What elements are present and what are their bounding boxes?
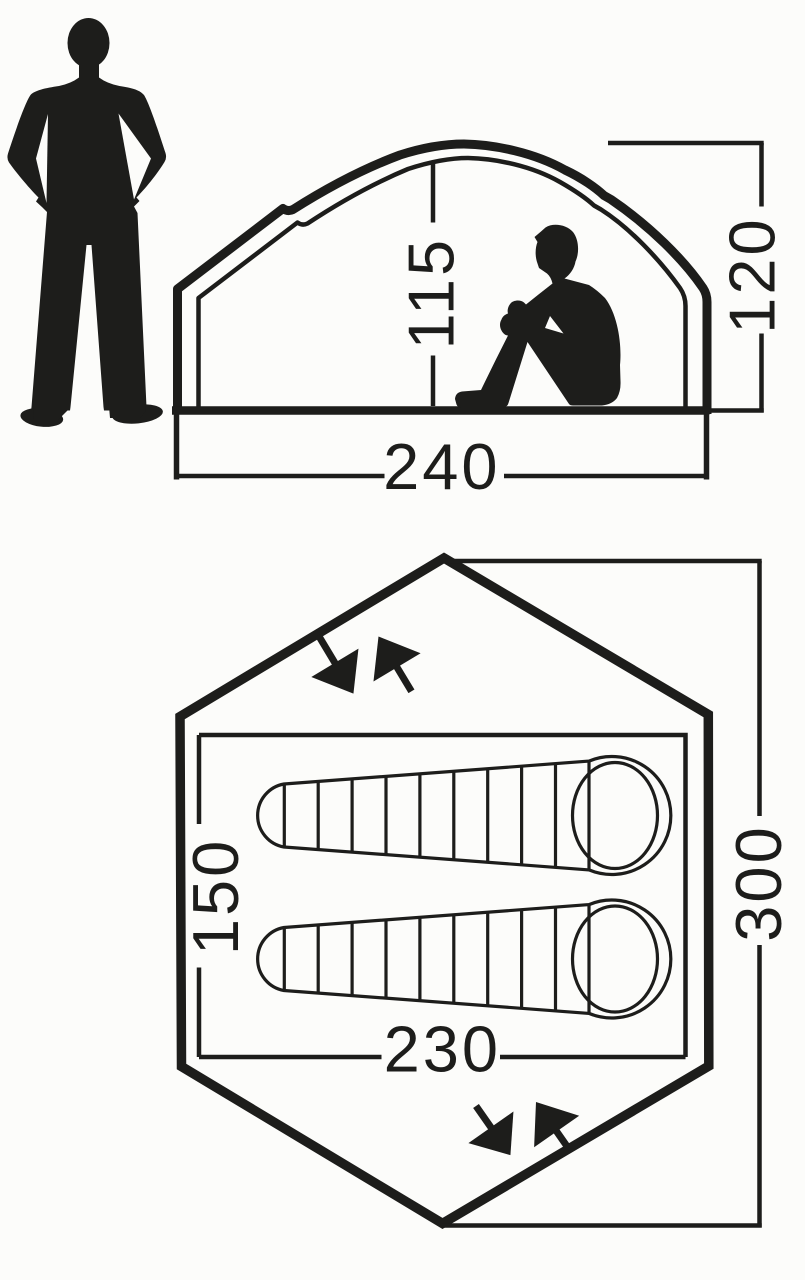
svg-text:115: 115: [394, 237, 467, 350]
svg-text:240: 240: [383, 430, 500, 503]
svg-text:230: 230: [384, 1013, 501, 1086]
svg-text:150: 150: [179, 838, 252, 955]
svg-text:300: 300: [722, 824, 795, 941]
svg-text:120: 120: [716, 216, 789, 333]
